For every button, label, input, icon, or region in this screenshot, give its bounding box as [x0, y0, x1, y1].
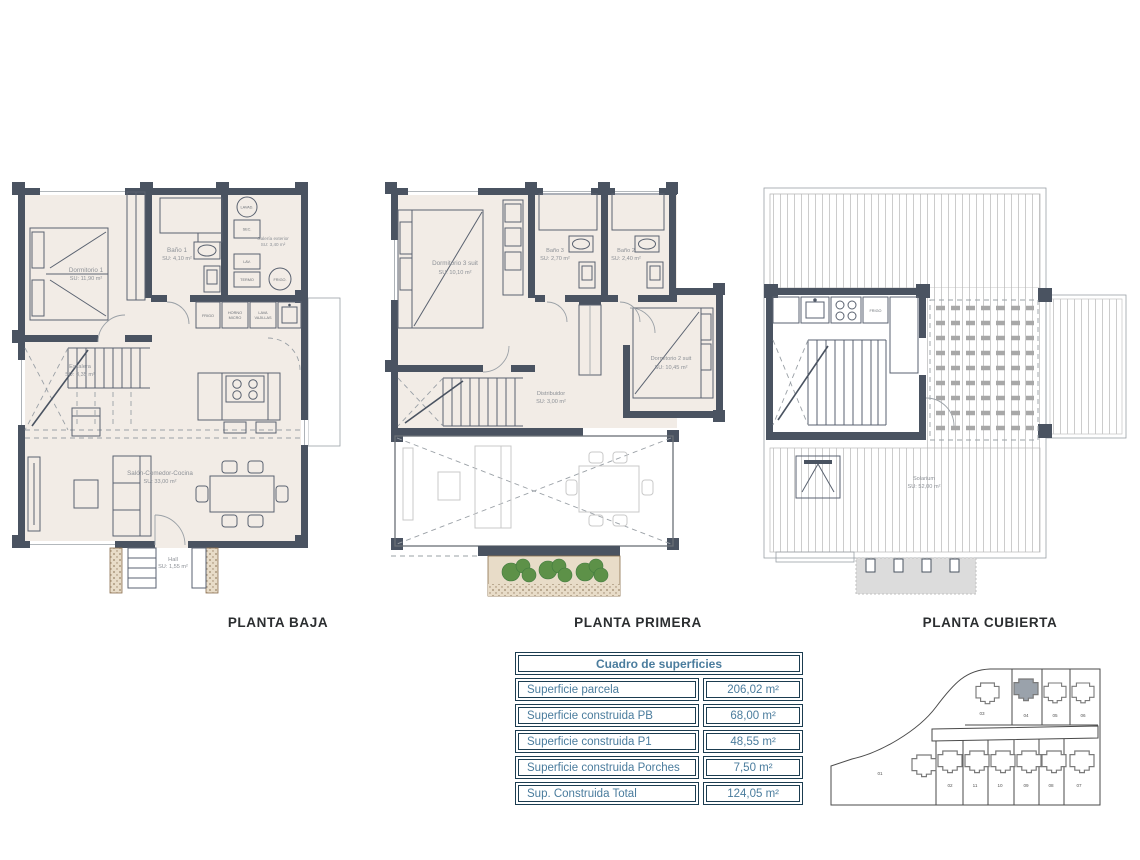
room-label: Galería exterior: [257, 236, 289, 241]
laundry-sink-label: LAV.: [243, 260, 251, 264]
room-label: Distribuidor: [537, 391, 565, 397]
porch-wall: [206, 548, 218, 593]
row-value: 68,00 m²: [706, 707, 800, 724]
room-label: Baño 1: [167, 247, 187, 254]
plot-label: 04: [1023, 713, 1029, 718]
site-plan: 01 03 04 05 06 02 11 10 09 08 07: [830, 655, 1140, 815]
plot-label: 10: [997, 783, 1003, 788]
row-label: Superficie construida Porches: [518, 759, 696, 776]
room-label: Dormitorio 3 suit: [432, 260, 478, 267]
horno-label: HORNO: [228, 311, 242, 315]
room-label: Hall: [168, 557, 178, 563]
room-area: SU: 2,40 m²: [611, 256, 641, 262]
porch-below: [856, 558, 976, 594]
room-label: Baño 3: [546, 248, 564, 254]
lava-label: LAVA: [258, 311, 268, 315]
room-area: SU: 52,00 m²: [908, 484, 941, 490]
planta-baja-floorplan: Dormitorio 1 SU: 11,90 m² Baño 1 SU: 4,1…: [10, 180, 342, 610]
room-area: SU: 33,00 m²: [144, 479, 177, 485]
floorplan-sheet: Dormitorio 1 SU: 11,90 m² Baño 1 SU: 4,1…: [0, 0, 1140, 860]
frigo-label: FRIGO: [202, 314, 214, 318]
room-label: Solarium: [913, 476, 935, 482]
room-label: Dormitorio 2 suit: [651, 356, 692, 362]
porch-wall: [110, 548, 122, 593]
fridge-label: FRIGO: [869, 309, 881, 313]
room-area: SU: 3,00 m²: [536, 399, 566, 405]
room-area: SU: 3,40 m²: [261, 242, 286, 247]
void-over-living: [395, 436, 673, 546]
room-area: SU: 2,70 m²: [540, 256, 570, 262]
table-row: Superficie construida Porches 7,50 m²: [515, 756, 803, 779]
row-label: Superficie construida PB: [518, 707, 696, 724]
row-value: 206,02 m²: [706, 681, 800, 698]
room-label: Dormitorio 1: [69, 267, 104, 274]
row-value: 48,55 m²: [706, 733, 800, 750]
plot-label: 05: [1052, 713, 1058, 718]
room-area: SU: 1,55 m²: [158, 564, 188, 570]
room-area: SU: 10,10 m²: [439, 270, 472, 276]
plot-label: 06: [1080, 713, 1086, 718]
row-label: Superficie construida P1: [518, 733, 696, 750]
row-value: 7,50 m²: [706, 759, 800, 776]
surface-table-title: Cuadro de superficies: [518, 655, 800, 672]
side-terrace-deck: [1050, 299, 1122, 434]
plot-label: 11: [973, 783, 978, 788]
room-area: SU: 4,10 m²: [162, 256, 192, 262]
room-label: Salón-Comedor-Cocina: [127, 470, 193, 477]
title-planta-primera: PLANTA PRIMERA: [574, 615, 702, 630]
micro-label: MICRO: [229, 316, 242, 320]
title-planta-baja: PLANTA BAJA: [228, 615, 328, 630]
plot-label: 01: [877, 771, 883, 776]
title-planta-cubierta: PLANTA CUBIERTA: [923, 615, 1058, 630]
planter: [488, 556, 620, 596]
plot-label: 07: [1076, 783, 1082, 788]
plot-label: 08: [1048, 783, 1054, 788]
table-row: Superficie construida P1 48,55 m²: [515, 730, 803, 753]
vajillas-label: VAJILLAS: [254, 316, 271, 320]
lower-step: [776, 552, 854, 562]
core-floor: [773, 295, 919, 432]
table-row: Sup. Construida Total 124,05 m²: [515, 782, 803, 805]
highlighted-house: [1014, 679, 1038, 701]
roof-deck: [770, 194, 1040, 288]
row-label: Sup. Construida Total: [518, 785, 696, 802]
table-row: Superficie construida PB 68,00 m²: [515, 704, 803, 727]
row-value: 124,05 m²: [706, 785, 800, 802]
plot-label: 02: [947, 783, 953, 788]
road: [932, 726, 1098, 741]
plot-label: 03: [979, 711, 985, 716]
plot-label: 09: [1023, 783, 1029, 788]
room-area: SU: 3,35 m²: [65, 372, 95, 378]
fridge-label: FRIGO.: [273, 278, 286, 282]
room-label: Baño 2: [617, 248, 635, 254]
washer-label: LAVAD.: [241, 206, 254, 210]
terrace-wall: [478, 546, 620, 556]
ghost-furniture: [403, 446, 653, 528]
surface-table: Cuadro de superficies Superficie parcela…: [515, 652, 803, 805]
planta-cubierta-floorplan: FRIGO: [756, 180, 1138, 610]
future-extension-outline: [308, 298, 340, 446]
table-header-row: Cuadro de superficies: [515, 652, 803, 675]
dryer-label: SEC.: [243, 228, 252, 232]
room-area: SU: 11,90 m²: [70, 276, 103, 282]
planta-primera-floorplan: Dormitorio 3 suit SU: 10,10 m² Baño 3 SU…: [383, 180, 733, 610]
room-area: SU: 10,45 m²: [655, 365, 688, 371]
room-label: Escalera: [69, 364, 92, 370]
row-label: Superficie parcela: [518, 681, 696, 698]
water-heater-label: TERMO: [240, 278, 254, 282]
table-row: Superficie parcela 206,02 m²: [515, 678, 803, 701]
